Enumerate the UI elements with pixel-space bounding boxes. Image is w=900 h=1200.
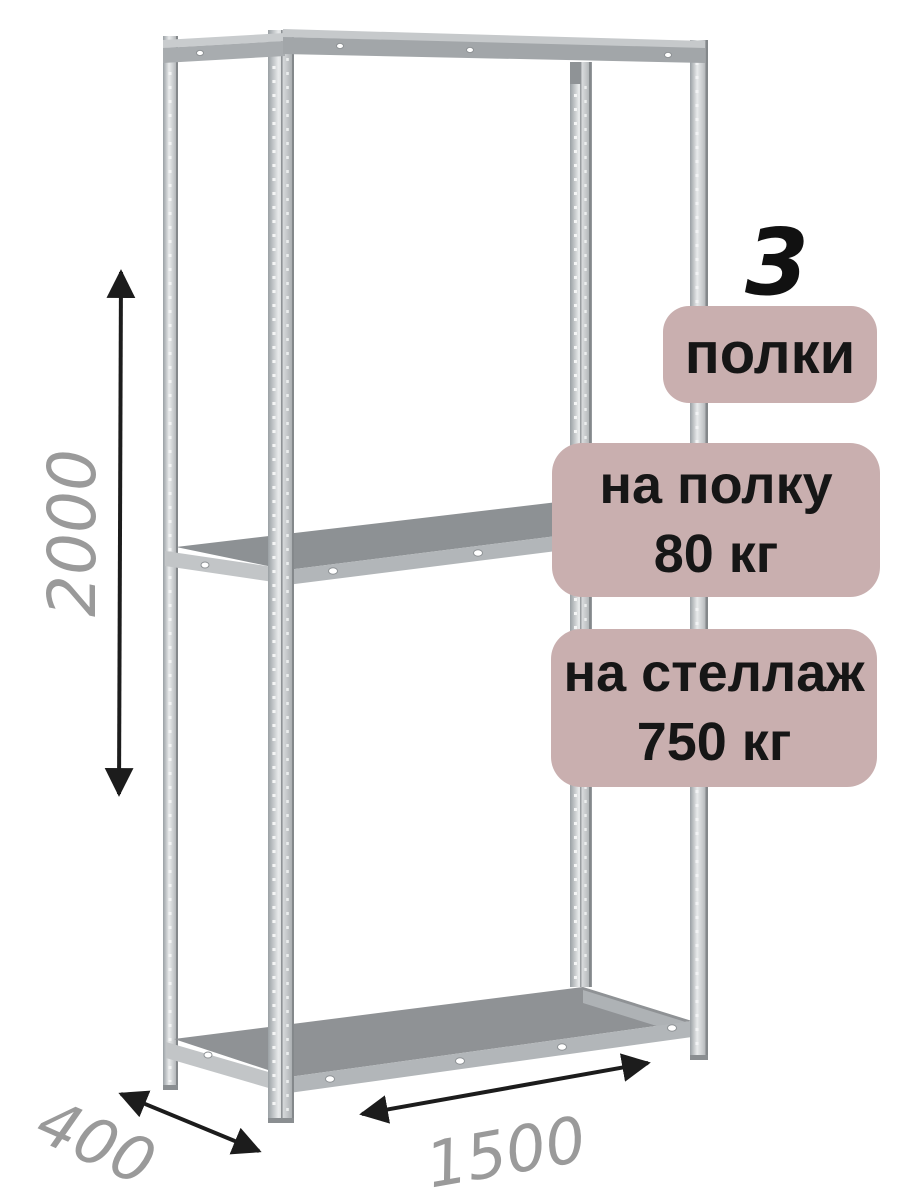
badge-shelves-label: полки (685, 317, 856, 391)
badge-shelf-load: на полку 80 кг (552, 443, 880, 597)
height-arrow (119, 272, 121, 794)
bottom-shelf (166, 987, 692, 1094)
product-image: 2000 400 1500 3 полки на полку 80 кг на … (0, 0, 900, 1200)
rack-illustration (0, 0, 900, 1200)
badge-rack-load-line1: на стеллаж (563, 639, 864, 708)
badge-rack-load-line2: 750 кг (637, 708, 792, 777)
badge-shelf-load-line2: 80 кг (654, 520, 779, 589)
badge-rack-load: на стеллаж 750 кг (551, 629, 877, 787)
top-frame (163, 29, 705, 63)
badge-shelves: полки (663, 306, 877, 403)
badge-shelf-load-line1: на полку (599, 451, 832, 520)
front-left-post (268, 30, 294, 1123)
height-dimension-label: 2000 (32, 381, 112, 685)
shelf-count: 3 (727, 212, 827, 312)
